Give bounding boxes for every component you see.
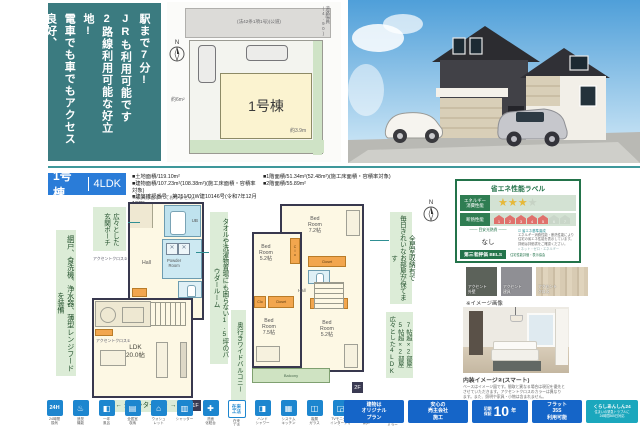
bedroom3-label: Bed Room 7.5帖 <box>262 318 276 337</box>
car-parked-horizontal <box>246 45 288 61</box>
intro-callout: 駅まで7分! JRも利用可能です 2路線利用可能な好立地! 電車でも車でもアクセ… <box>48 3 161 161</box>
section-divider <box>48 166 640 168</box>
accent-cross-2-label: アクセントクロス② <box>93 256 129 262</box>
interior-caption: 内装イメージ②(スマート) ベースはイメージ図です。間取と異なる場合は現況を優先… <box>463 375 593 400</box>
shower-icon: ◨ <box>255 400 271 416</box>
sofa <box>156 342 168 378</box>
amenity-vanity: ✚ 洗面 化粧台 <box>200 400 221 426</box>
plot-boundary: 1号棟 約3.9m <box>189 40 323 154</box>
toilet-symbol <box>187 285 196 297</box>
stove-symbol <box>122 307 144 323</box>
callout-porch: 広々とした 玄関ポーチ <box>93 207 126 251</box>
energy-consumption-label: エネルギー 消費性能 <box>460 195 490 211</box>
swatch-exterior-label: アクセント 外壁 <box>468 285 487 294</box>
washlet-icon: ⌂ <box>151 400 167 416</box>
shutter-icon: ▥ <box>177 400 193 416</box>
site-plan: (法42条1項1号)(公道) 道路幅員(4.90) N 1号棟 約3.9m 約6… <box>167 2 341 162</box>
amenity-kitchen: ▦ システム キッチン <box>278 400 299 426</box>
badge-original-plan: 建物は オリジナル プラン <box>344 400 404 423</box>
building-unit-label: 1号棟 <box>248 96 284 116</box>
arrow-porch <box>128 222 140 223</box>
vanity-icon: ✚ <box>203 400 219 416</box>
amenity-caption: 追焚 機能 <box>70 417 91 425</box>
insulation-level-1: 1 <box>494 215 504 224</box>
swatch-cross-label: アクセント クロス <box>538 285 557 294</box>
entrance-porch <box>130 204 153 228</box>
energy-cost-block: ─── 目安光熱費 ─── なし <box>460 228 516 251</box>
amenity-shutter: ▥ シャッター <box>174 400 195 426</box>
bed-3 <box>256 346 280 362</box>
compass-2f: N <box>421 200 441 227</box>
closet-br2: Clo <box>290 238 300 264</box>
insulation-scale: 1 2 3 4 5 6 7 <box>490 213 576 226</box>
bedroom4-label: Bed Room 5.2帖 <box>320 320 334 339</box>
amenity-caption: ハンド シャワー <box>252 417 273 425</box>
spec-1f-area: ■1階面積/51.34m²(52.48m²)(施工床面積・容積率対象) <box>263 174 393 181</box>
sink-symbol <box>100 307 116 323</box>
interior-sofa <box>491 349 539 361</box>
spec-building-area: ■建物面積/107.23m²(108.38m²)(施工床面積・容積率対象) <box>132 181 260 195</box>
floor-tag-2f: 2F <box>352 382 363 393</box>
closet-br3: Closet <box>268 296 294 308</box>
amenity-caption: 全居室 収納 <box>122 417 143 425</box>
callout-room-sizes: 7帖超×2部屋 5帖超×2部屋 広々とした4LDK <box>386 312 413 378</box>
amenity-caption: 一坪 風呂 <box>96 417 117 425</box>
spec-column-2: ■1階面積/51.34m²(52.48m²)(施工床面積・容積率対象) ■2階面… <box>263 174 393 188</box>
badge-warranty: 初期 保証 10 年 <box>472 400 528 423</box>
storage-icon: ▤ <box>125 400 141 416</box>
floor-plan-2f: Bed Room 7.2帖 Closet Bed Room 5.2帖 Clo C… <box>252 204 366 396</box>
compass-2f-icon <box>423 206 439 222</box>
swatch-exterior: アクセント 外壁 <box>466 267 497 296</box>
energy-cost-label: ─── 目安光熱費 ─── <box>460 228 516 233</box>
glass-icon: ◫ <box>307 400 323 416</box>
hall-label-2f: Hall <box>298 288 306 293</box>
callout-wide-balcony: 奥行きワイドバルコニー <box>231 310 246 404</box>
house-illustration <box>348 0 640 163</box>
amenity-caption: ウォシュ レット <box>148 417 169 425</box>
stairs-1f <box>150 302 186 326</box>
warranty-unit: 年 <box>511 408 516 415</box>
interior-note: ベースはイメージ図です。間取と異なる場合は現況を優先と させていただきます。アク… <box>463 385 593 400</box>
callout-storage: 全居室収納有で 毎日きれいなお部屋が保てます <box>390 212 412 304</box>
interior-rug <box>493 361 541 371</box>
planting-strip-right <box>313 41 322 155</box>
badge-kurashi-anshin: くらしあんしん24 住まいの緊急トラブルに 24時間365日対応 <box>586 400 638 423</box>
energy-cost-value: なし <box>460 236 516 246</box>
energy-footer: 第三者評価 BELS 住宅性能評価・表示協会 <box>460 250 545 259</box>
powder-label: Powder Room <box>167 258 181 268</box>
energy-insulation-label: 断熱性能 <box>460 213 490 226</box>
interior-shelf <box>469 311 483 355</box>
swatch-cross: アクセント クロス <box>536 267 588 296</box>
pendant-light <box>510 315 523 322</box>
floor-plan-1f: UB ✕ ✕ Powder Room Hall LDK 20.0帖 広々とした … <box>92 202 205 412</box>
amenity-washlet: ⌂ ウォシュ レット <box>148 400 169 426</box>
reheat-icon: ♨ <box>73 400 89 416</box>
energy-stars: ★★★ ★ <box>490 195 576 211</box>
badge-seller-construction: 安心の 売主会社 施工 <box>408 400 468 423</box>
ventilation-icon: 24H <box>47 400 63 416</box>
bathtub <box>170 211 186 235</box>
energy-notes: ☑ 省エネ基準達成 エネルギー消費性能・断熱性能により 住宅の省エネ性能を表示し… <box>516 228 576 251</box>
insulation-level-3: 3 <box>516 215 526 224</box>
insulation-level-2: 2 <box>505 215 515 224</box>
image-note: ※イメージ画像 <box>466 299 503 307</box>
bed-4 <box>344 344 358 368</box>
tv-board <box>180 342 187 378</box>
amenity-caption: 在来 工法 <box>226 419 247 426</box>
bed-1 <box>346 210 360 236</box>
swatch-door-label: アクセント 建具 <box>503 285 522 294</box>
bedroom1-label: Bed Room 7.2帖 <box>308 216 322 235</box>
energy-cost-text: 目安光熱費 <box>479 228 498 232</box>
warranty-prefix: 初期 保証 <box>484 407 492 417</box>
swatch-door: アクセント 建具 <box>501 267 532 296</box>
callout-powder-room: タオルや洗濯物置場にも困らない1.5坪のパウダールーム <box>210 212 228 364</box>
spec-land-area: ■土地面積/119.10m² <box>132 174 260 181</box>
energy-cost-section: ─── 目安光熱費 ─── なし ☑ 省エネ基準達成 エネルギー消費性能・断熱性… <box>460 228 576 251</box>
washer-symbol: ✕ <box>166 243 178 255</box>
material-swatches: アクセント 外壁 アクセント 建具 アクセント クロス <box>466 267 588 296</box>
amenity-bath: ◧ 一坪 風呂 <box>96 400 117 426</box>
amenity-caption: 洗面 化粧台 <box>200 417 221 425</box>
bedroom2-label: Bed Room 5.2帖 <box>259 244 273 263</box>
amenity-glass: ◫ 複層 ガラス <box>304 400 325 426</box>
accent-cross-1-label: アクセントクロス① <box>96 338 130 344</box>
interior-title: 内装イメージ②(スマート) <box>463 375 593 384</box>
planting-strip-bottom <box>190 140 324 153</box>
construction-method-icon: 在来 工法 <box>228 400 246 418</box>
compass: N <box>167 40 187 67</box>
amenity-shower: ◨ ハンド シャワー <box>252 400 273 426</box>
kurashi-sub: 住まいの緊急トラブルに 24時間365日対応 <box>594 410 629 418</box>
pendant-cord <box>515 307 516 315</box>
accent-counter <box>95 329 113 336</box>
property-flyer: 駅まで7分! JRも利用可能です 2路線利用可能な好立地! 電車でも車でもアクセ… <box>0 0 640 426</box>
balcony: Balcony <box>252 368 330 383</box>
badge-flat35s: フラット 35S 利用可能 <box>532 400 582 423</box>
warranty-years: 10 <box>494 402 510 420</box>
arrow-storage <box>370 240 389 241</box>
amenity-caption: 24時間 換気 <box>44 417 65 425</box>
furniture-note: ※家具は含まれておりません。 <box>132 194 198 201</box>
road-label: (法42条1項1号)(公道) <box>186 19 332 24</box>
amenity-reheat: ♨ 追焚 機能 <box>70 400 91 426</box>
insulation-level-4: 4 <box>527 215 537 224</box>
washer-symbol-2: ✕ <box>178 243 190 255</box>
unit-number: 1号棟 <box>48 167 88 201</box>
kitchen-icon: ▦ <box>281 400 297 416</box>
unit-badge: 1号棟 4LDK <box>48 173 126 195</box>
road: (法42条1項1号)(公道) <box>185 8 331 38</box>
callout-equipment: 網戸、食洗機、浄水器、薄型レンジフードを装備 <box>56 230 76 376</box>
amenity-storage: ▤ 全居室 収納 <box>122 400 143 426</box>
stairs-2f <box>314 282 344 309</box>
unit-layout: 4LDK <box>88 178 126 190</box>
carport-area-label: 約6m² <box>171 98 185 104</box>
insulation-level-6: 6 <box>549 215 559 224</box>
dining-table <box>100 350 126 366</box>
energy-note-text: エネルギー消費性能・断熱性能により 住宅の省エネ性能を表示しています。 詳細は評… <box>518 233 576 246</box>
spec-2f-area: ■2階面積/55.89m² <box>263 181 393 188</box>
closet-br1: Closet <box>308 256 346 267</box>
bath-label: UB <box>192 218 198 224</box>
amenity-caption: 複層 ガラス <box>304 417 325 425</box>
energy-title: 省エネ性能ラベル <box>457 181 579 193</box>
energy-row-insulation: 断熱性能 1 2 3 4 5 6 7 <box>460 213 576 226</box>
energy-row-consumption: エネルギー 消費性能 ★★★ ★ <box>460 195 576 211</box>
amenity-caption: システム キッチン <box>278 417 299 425</box>
energy-label: 省エネ性能ラベル エネルギー 消費性能 ★★★ ★ 断熱性能 1 2 3 4 5… <box>455 179 581 263</box>
car-parked-vertical <box>198 45 216 83</box>
room-powder: ✕ ✕ Powder Room <box>162 239 202 279</box>
setback-dimension: 約3.9m <box>290 129 306 135</box>
stars-filled: ★★★ <box>498 198 528 209</box>
ldk-label: LDK 20.0帖 <box>126 344 145 359</box>
room-bath: UB <box>164 205 201 237</box>
hall-label: Hall <box>142 260 151 266</box>
insulation-level-5: 5 <box>538 215 548 224</box>
room-wc <box>178 281 202 298</box>
bels-badge: 第三者評価 BELS <box>460 250 506 259</box>
amenity-construction: 在来 工法 在来 工法 <box>226 400 247 426</box>
interior-curtain <box>555 309 568 365</box>
arrow-towel <box>196 252 209 253</box>
amenity-caption: シャッター <box>174 417 195 421</box>
star-empty: ★ <box>528 198 538 209</box>
compass-icon <box>169 46 185 62</box>
insulation-level-7: 7 <box>560 215 570 224</box>
interior-render <box>463 307 569 373</box>
accent-shelf <box>132 288 147 297</box>
exterior-render <box>348 0 640 163</box>
bath-icon: ◧ <box>99 400 115 416</box>
energy-footer-note: 住宅性能評価・表示協会 <box>510 252 545 257</box>
road-width-label: 道路幅員(4.90) <box>320 6 330 40</box>
kitchen-counter <box>95 301 151 327</box>
closet-small: Clo <box>254 296 266 308</box>
amenity-ventilation: 24H 24時間 換気 <box>44 400 65 426</box>
